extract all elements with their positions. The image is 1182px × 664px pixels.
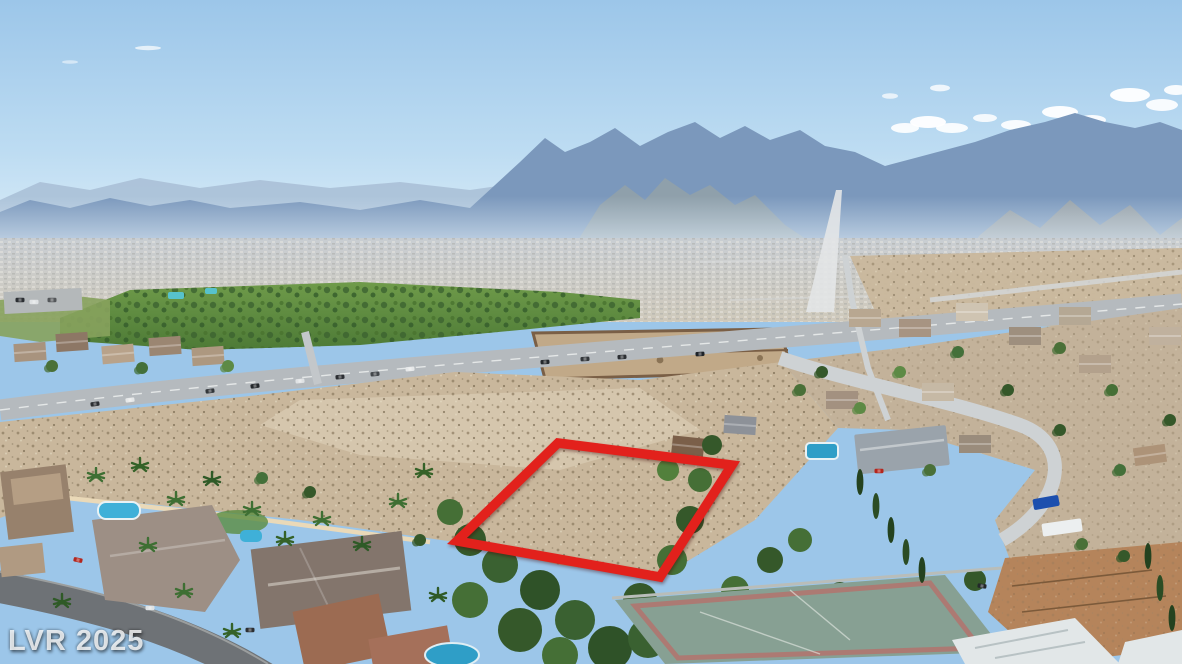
tennis-court [612, 568, 1005, 664]
park-pool [168, 292, 184, 299]
swimming-pool [425, 643, 479, 664]
swimming-pool [98, 502, 140, 519]
watermark: LVR 2025 [8, 625, 144, 658]
park-pool [205, 288, 217, 294]
aerial-photo: LVR 2025 [0, 0, 1182, 664]
corral-area [952, 538, 1182, 664]
large-gray-roof-house [854, 425, 950, 474]
red-car [875, 469, 884, 473]
red-car [73, 557, 83, 563]
swimming-pool [240, 530, 262, 542]
swimming-pool [806, 443, 838, 459]
cypress-row [857, 469, 926, 583]
two-story-home [0, 464, 74, 540]
large-home-roof [92, 505, 240, 612]
parking-lot [3, 288, 82, 314]
aerial-scene [0, 0, 1182, 664]
small-home [0, 543, 45, 577]
